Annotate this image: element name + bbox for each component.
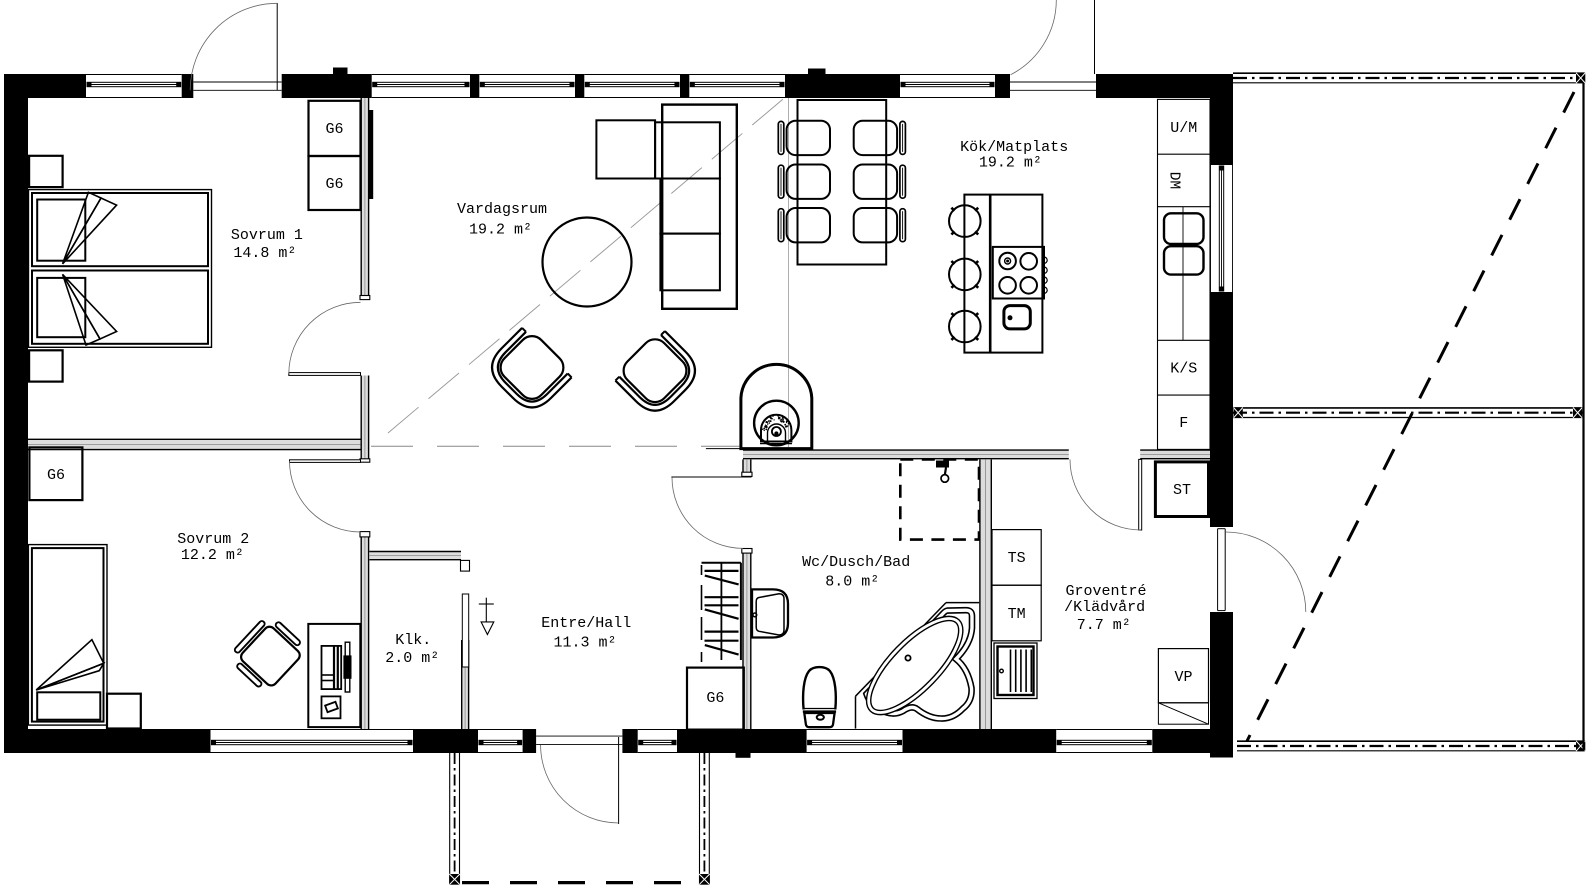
svg-text:G6: G6 [706,690,724,707]
svg-text:19.2 m²: 19.2 m² [979,155,1042,172]
svg-text:14.8 m²: 14.8 m² [233,245,296,262]
svg-text:8.0 m²: 8.0 m² [825,574,879,591]
svg-text:Klk.: Klk. [395,632,431,649]
svg-text:19.2 m²: 19.2 m² [469,222,532,239]
svg-text:Wc/Dusch/Bad: Wc/Dusch/Bad [802,554,910,571]
svg-text:Vardagsrum: Vardagsrum [457,201,547,218]
svg-text:TS: TS [1008,550,1026,567]
svg-text:G6: G6 [47,467,65,484]
svg-text:12.2 m²: 12.2 m² [181,547,244,564]
svg-text:K/S: K/S [1170,361,1197,378]
svg-text:U/M: U/M [1170,120,1197,137]
svg-text:DM: DM [1166,172,1182,189]
svg-text:VP: VP [1174,669,1192,686]
svg-text:G6: G6 [325,176,343,193]
svg-text:7.7 m²: 7.7 m² [1077,617,1131,634]
svg-text:ST: ST [1173,482,1191,499]
svg-text:Kök/Matplats: Kök/Matplats [960,139,1068,156]
svg-text:F: F [1179,415,1188,432]
svg-text:TM: TM [1008,606,1026,623]
svg-text:Sovrum 2: Sovrum 2 [177,531,249,548]
svg-text:2.0 m²: 2.0 m² [385,650,439,667]
svg-text:Sovrum 1: Sovrum 1 [231,227,303,244]
svg-text:Entre/Hall: Entre/Hall [541,615,631,632]
svg-text:/Klädvård: /Klädvård [1064,599,1145,616]
svg-text:11.3 m²: 11.3 m² [553,635,616,652]
svg-text:G6: G6 [325,121,343,138]
svg-text:Groventré: Groventré [1065,583,1146,600]
